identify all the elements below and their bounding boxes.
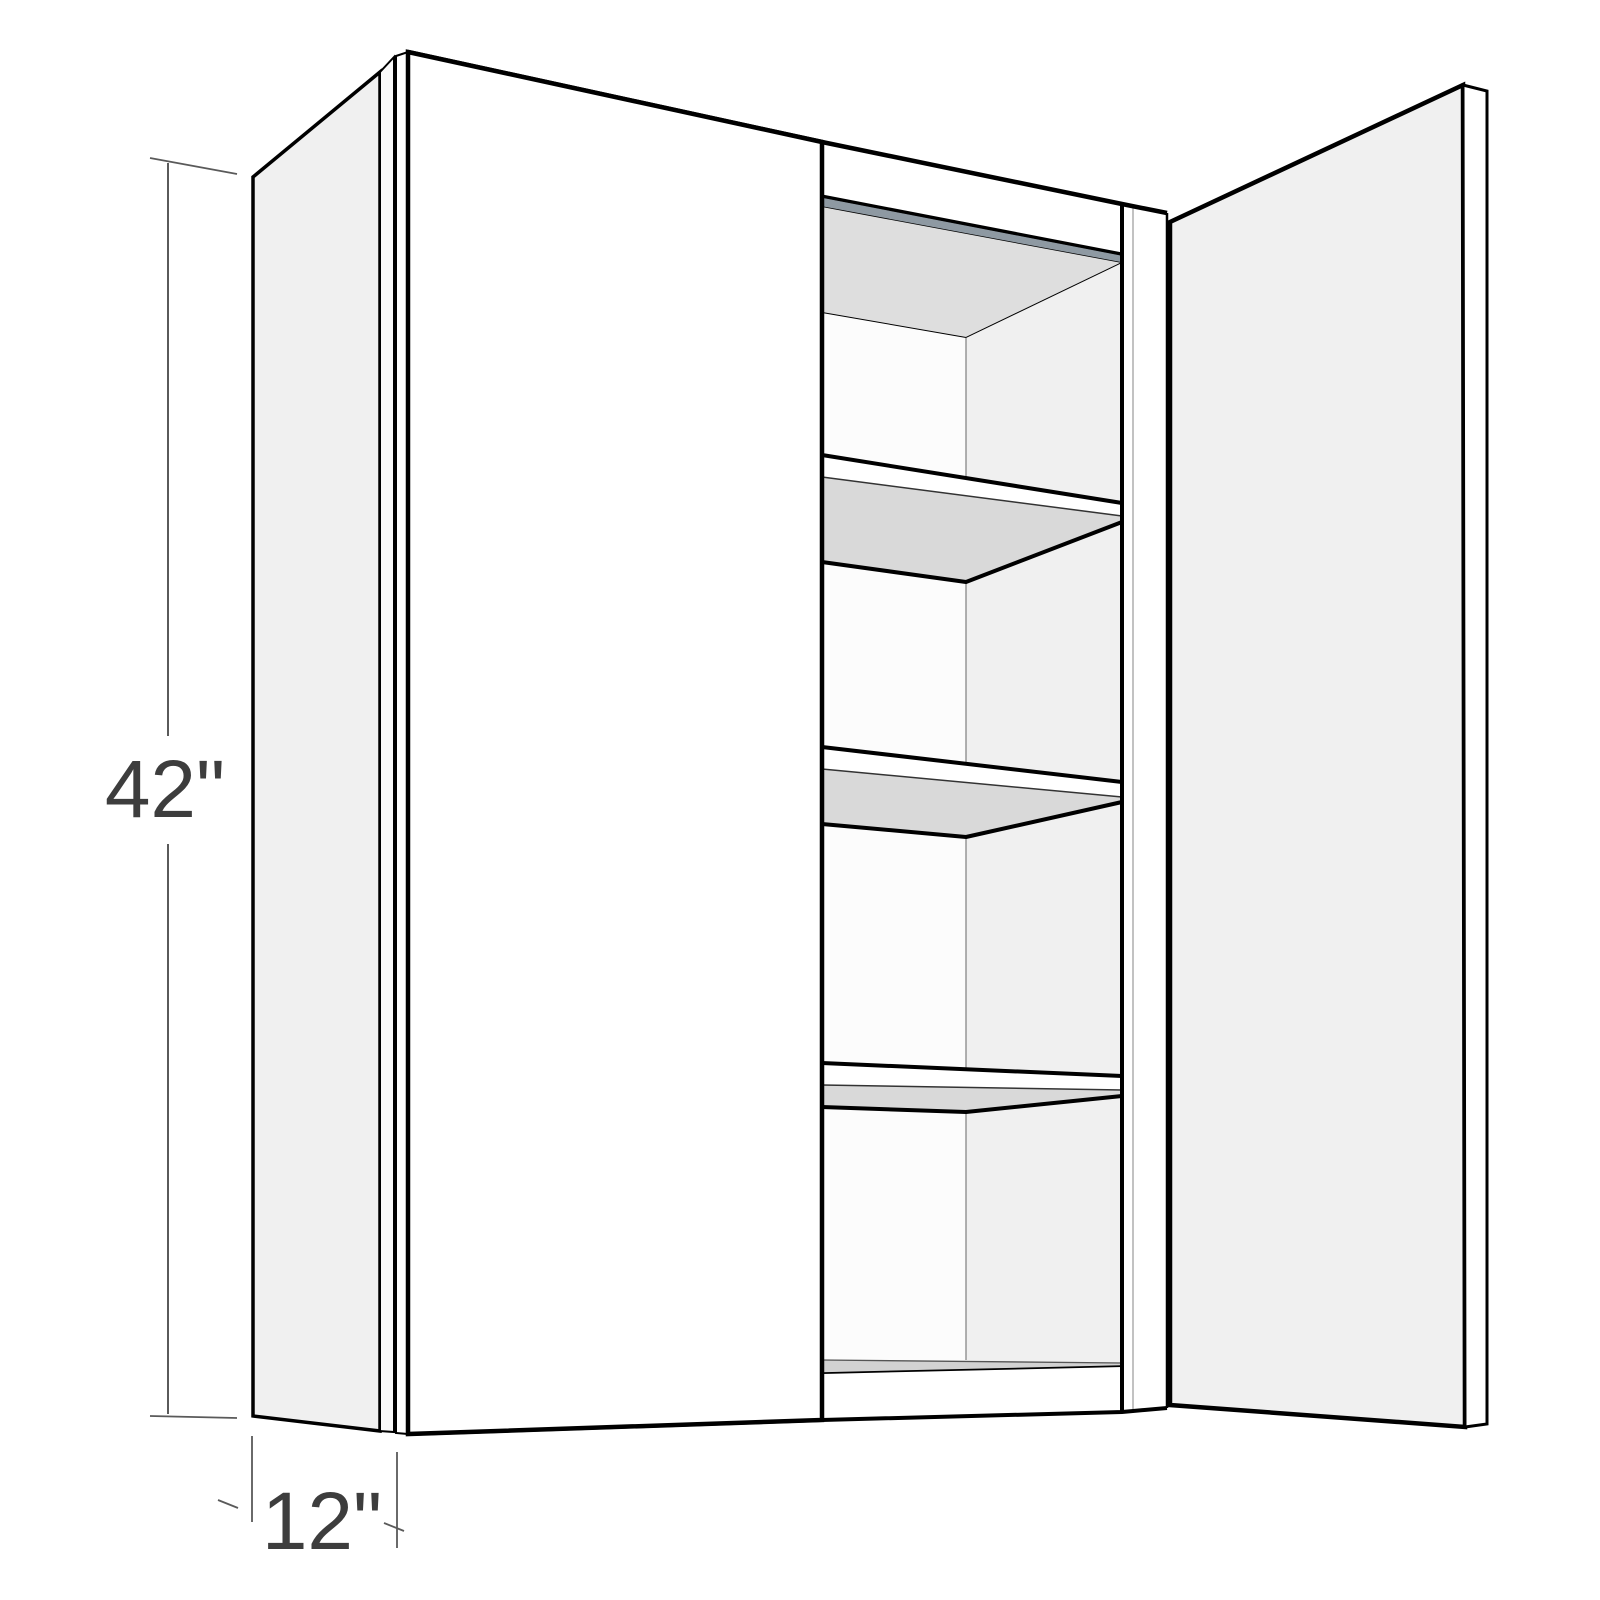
left-door-closed — [408, 52, 822, 1434]
depth-dim-tick-left — [218, 1500, 238, 1508]
cabinet-diagram: 42" 12" — [0, 0, 1600, 1600]
depth-dim-label: 12" — [262, 1476, 382, 1567]
depth-dim-tick-right — [384, 1523, 404, 1531]
height-dim-label: 42" — [105, 744, 225, 835]
side-panel-front-edge-strip — [380, 57, 394, 1432]
left-side-panel — [253, 72, 380, 1431]
cabinet-diagram-canvas: 42" 12" — [0, 0, 1600, 1600]
right-stile — [1122, 204, 1167, 1412]
height-dim-witness-bottom — [150, 1416, 237, 1418]
right-door-edge-strip — [1463, 85, 1487, 1427]
right-door-open-inner-face — [1170, 85, 1465, 1427]
height-dim-witness-top — [150, 158, 237, 174]
